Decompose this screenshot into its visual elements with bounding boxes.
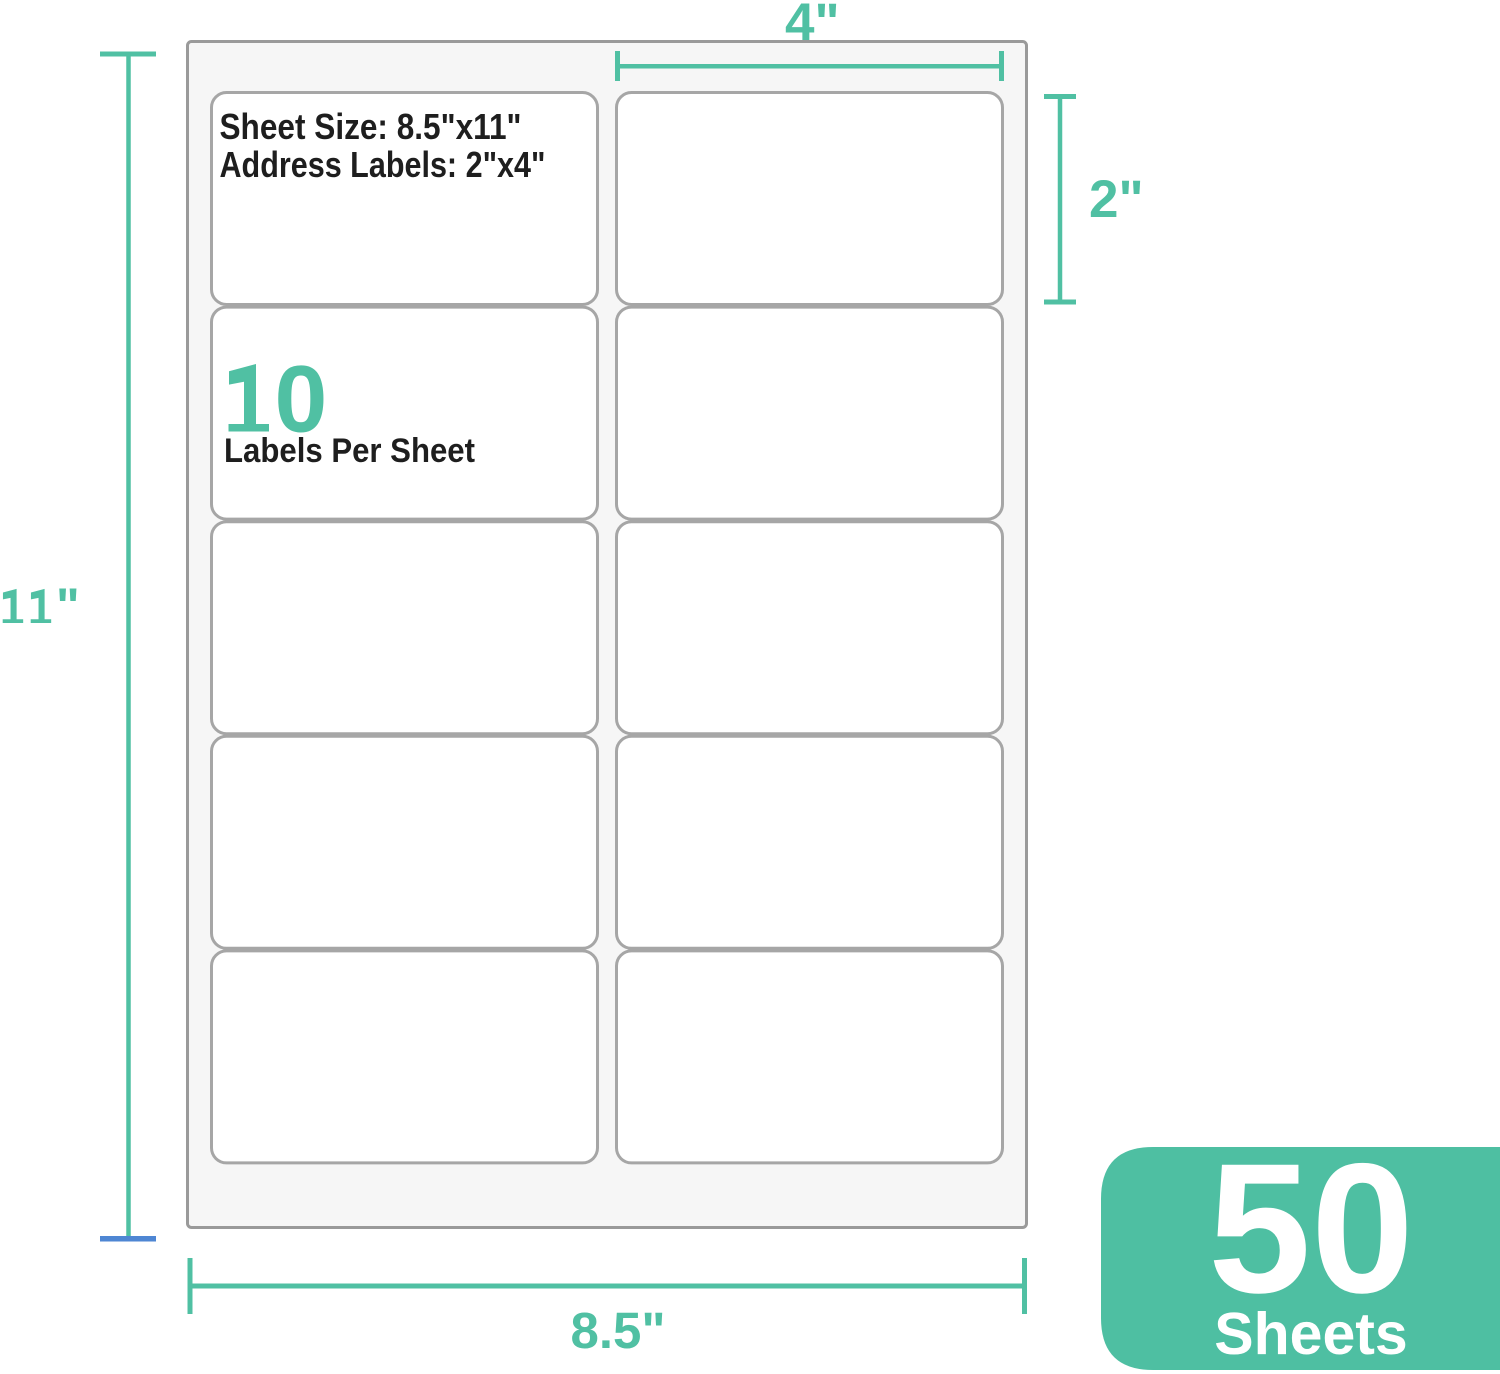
- svg-text:": ": [56, 578, 80, 634]
- svg-text:4": 4": [785, 0, 840, 52]
- svg-text:8.5": 8.5": [570, 1302, 665, 1359]
- svg-text:Address Labels: 2"x4": Address Labels: 2"x4": [220, 144, 546, 185]
- svg-text:2": 2": [1089, 170, 1144, 229]
- svg-text:Sheet Size: 8.5"x11": Sheet Size: 8.5"x11": [220, 106, 522, 147]
- svg-text:Sheets: Sheets: [1214, 1301, 1407, 1367]
- svg-text:Labels Per Sheet: Labels Per Sheet: [224, 432, 475, 470]
